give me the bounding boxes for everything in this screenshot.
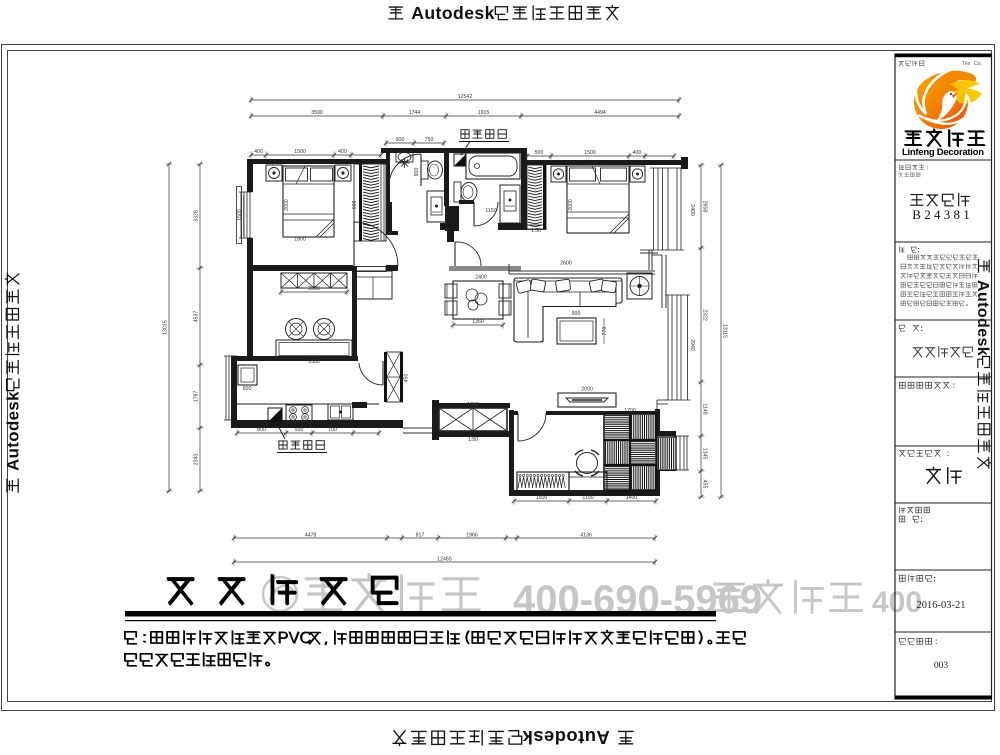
svg-text:400: 400 [872,586,922,619]
svg-text:2322: 2322 [702,309,708,321]
svg-text::: : [920,324,923,333]
svg-text:2000: 2000 [581,387,593,393]
svg-text:500: 500 [535,150,544,156]
svg-text:750: 750 [425,137,434,143]
svg-text:2658: 2658 [702,201,708,213]
svg-text:600: 600 [243,386,252,392]
svg-text:1915: 1915 [478,110,490,116]
svg-text:Autodesk: Autodesk [522,727,610,748]
svg-text:1787: 1787 [194,391,200,403]
svg-text:1500: 1500 [294,149,306,155]
svg-text:1500: 1500 [536,495,548,501]
svg-text:1345: 1345 [702,448,708,460]
svg-text:900: 900 [572,311,581,317]
svg-text:13115: 13115 [722,324,728,338]
svg-text:1380: 1380 [308,359,320,365]
svg-text:1400: 1400 [626,495,638,501]
svg-text:3590: 3590 [311,110,323,116]
svg-text:2400: 2400 [475,275,487,281]
svg-text:4478: 4478 [305,533,317,539]
svg-text:4136: 4136 [580,533,592,539]
svg-text:Tex Co.: Tex Co. [962,61,983,67]
svg-text:4537: 4537 [194,311,200,323]
svg-text:1148: 1148 [702,403,708,414]
svg-text:600: 600 [352,201,358,210]
svg-text:3328: 3328 [194,210,200,222]
svg-text:1966: 1966 [466,533,478,539]
svg-text:1500: 1500 [237,209,243,221]
svg-text:455: 455 [702,480,708,489]
svg-text:1100: 1100 [582,495,593,501]
svg-text:400: 400 [254,149,263,155]
svg-text:2000: 2000 [568,199,574,211]
svg-text:400: 400 [633,150,642,156]
svg-text:13015: 13015 [163,320,169,335]
svg-text:1200: 1200 [467,402,479,408]
svg-text:4494: 4494 [594,110,606,116]
svg-text:2343: 2343 [194,454,200,466]
svg-text:Autodesk: Autodesk [974,280,991,356]
svg-text:2000: 2000 [308,286,320,292]
svg-text:Autodesk: Autodesk [3,391,22,471]
svg-text:1:50: 1:50 [531,228,541,234]
svg-text:900: 900 [396,137,405,143]
svg-text:1150: 1150 [485,208,496,214]
svg-text:003: 003 [934,661,949,671]
svg-text:1500: 1500 [584,150,596,156]
svg-text:1360: 1360 [472,319,484,325]
svg-text:2600: 2600 [560,261,572,267]
svg-text::: : [920,515,923,524]
svg-text:2016-03-21: 2016-03-21 [917,600,966,611]
svg-text:2400: 2400 [689,204,695,216]
svg-text:Autodesk: Autodesk [411,3,495,23]
svg-text:2000: 2000 [284,199,290,211]
svg-text:2940: 2940 [689,339,695,351]
svg-text:12542: 12542 [458,94,473,100]
svg-text:B 2 4 3 8 1: B 2 4 3 8 1 [912,207,969,222]
svg-text::: : [933,573,936,583]
svg-text:700: 700 [328,427,337,433]
svg-text:12465: 12465 [437,557,452,563]
svg-text:Linfeng Decoration: Linfeng Decoration [902,147,984,158]
svg-text:900: 900 [414,168,420,177]
svg-text:PVC: PVC [278,630,312,648]
svg-text:800: 800 [257,427,266,433]
svg-text:817: 817 [416,533,425,539]
svg-text:400: 400 [338,149,347,155]
svg-text:500: 500 [295,427,304,433]
svg-text:450: 450 [404,374,410,383]
svg-text:770: 770 [602,327,608,336]
svg-text:1744: 1744 [409,110,421,116]
svg-text:1700: 1700 [624,408,636,414]
svg-text::: : [918,247,920,254]
svg-text:1:50: 1:50 [468,437,478,443]
svg-text:1800: 1800 [294,237,306,243]
